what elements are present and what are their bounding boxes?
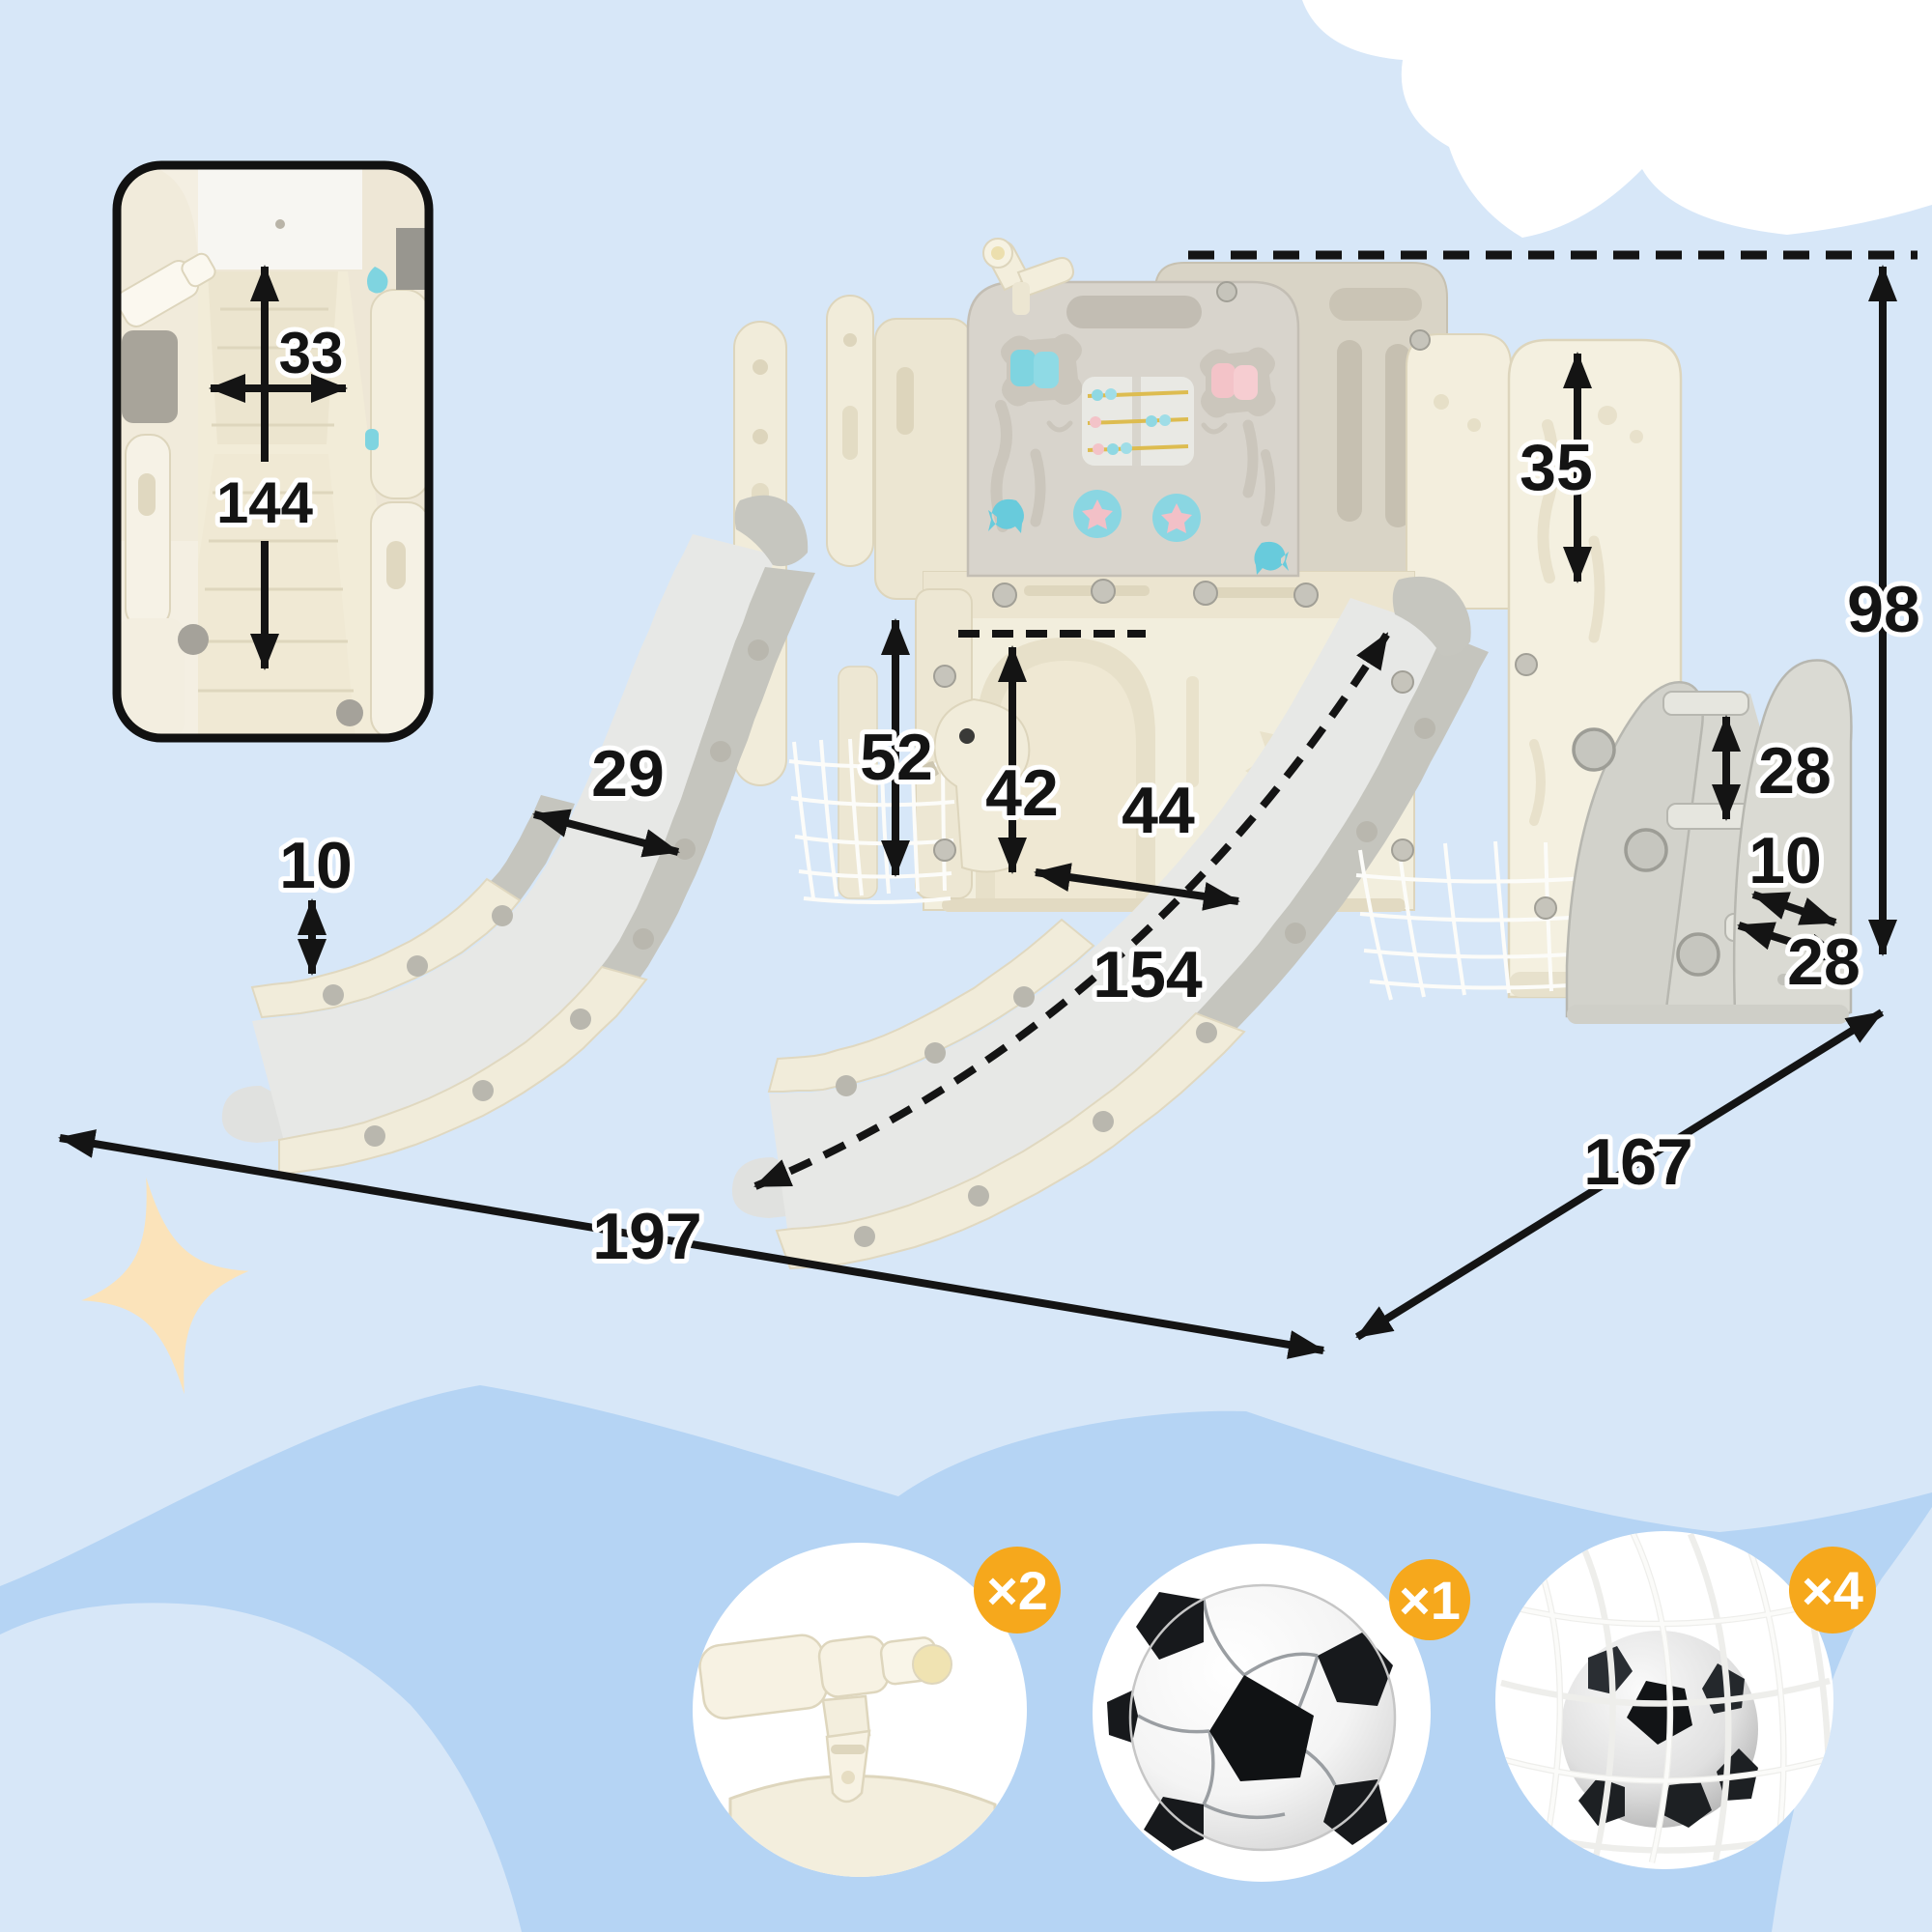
svg-text:29: 29 <box>591 737 665 810</box>
svg-text:42: 42 <box>985 756 1059 830</box>
svg-text:144: 144 <box>216 470 314 535</box>
svg-text:167: 167 <box>1583 1125 1692 1199</box>
svg-text:35: 35 <box>1520 431 1593 504</box>
svg-text:154: 154 <box>1093 938 1203 1011</box>
svg-text:10: 10 <box>1748 824 1822 897</box>
svg-text:98: 98 <box>1847 573 1920 646</box>
svg-text:×1: ×1 <box>1399 1570 1461 1631</box>
svg-text:28: 28 <box>1787 925 1861 999</box>
svg-text:52: 52 <box>860 721 933 794</box>
svg-text:33: 33 <box>279 321 344 385</box>
svg-text:28: 28 <box>1758 734 1832 808</box>
svg-text:44: 44 <box>1122 774 1195 847</box>
svg-text:×4: ×4 <box>1802 1560 1863 1621</box>
svg-text:197: 197 <box>592 1200 701 1273</box>
svg-text:×2: ×2 <box>986 1560 1048 1621</box>
svg-text:10: 10 <box>279 829 353 902</box>
